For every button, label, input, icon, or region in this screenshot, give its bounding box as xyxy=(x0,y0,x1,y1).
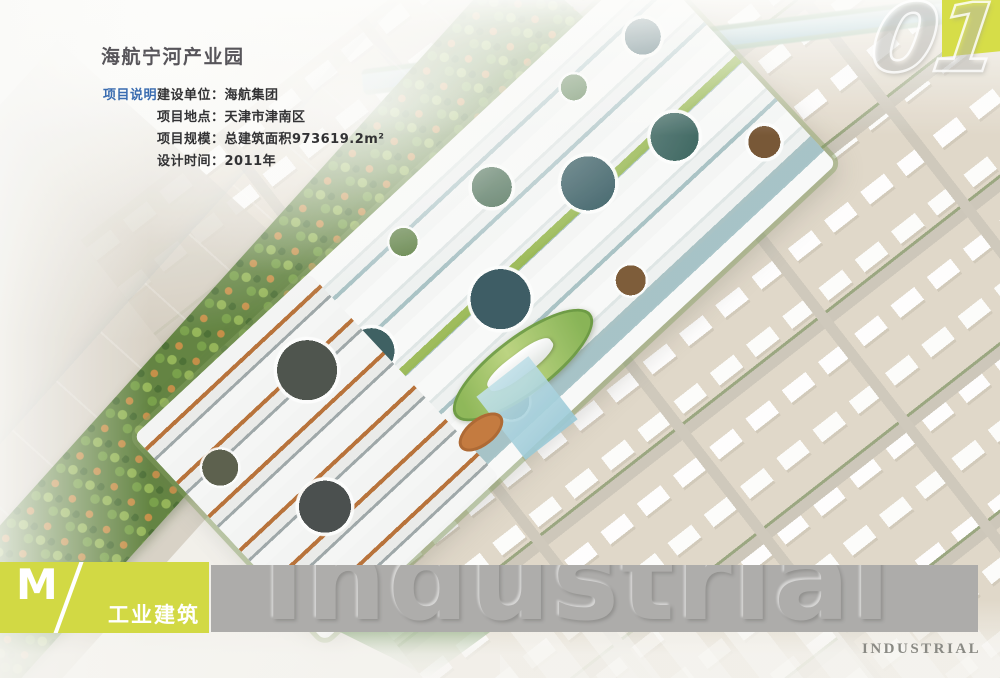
category-title: 工业建筑 xyxy=(108,599,200,629)
watermark-bar: Industrial xyxy=(211,565,978,632)
info-line-builder: 建设单位：海航集团 xyxy=(157,84,577,103)
page-title: 海航宁河产业园 xyxy=(101,42,245,69)
category-letter: M xyxy=(16,562,58,608)
info-line-scale: 项目规模：总建筑面积973619.2m² xyxy=(157,128,577,147)
portfolio-page: 海航宁河产业园 项目说明 建设单位：海航集团 项目地点：天津市津南区 项目规模：… xyxy=(0,0,1000,678)
page-number: 01 xyxy=(864,0,1000,94)
info-line-location: 项目地点：天津市津南区 xyxy=(157,106,577,125)
category-badge: M 工业建筑 xyxy=(0,562,209,633)
footer-caption: INDUSTRIAL xyxy=(862,641,981,658)
watermark-text: Industrial xyxy=(263,565,892,632)
section-label: 项目说明 xyxy=(103,84,157,103)
info-line-year: 设计时间：2011年 xyxy=(157,150,577,169)
